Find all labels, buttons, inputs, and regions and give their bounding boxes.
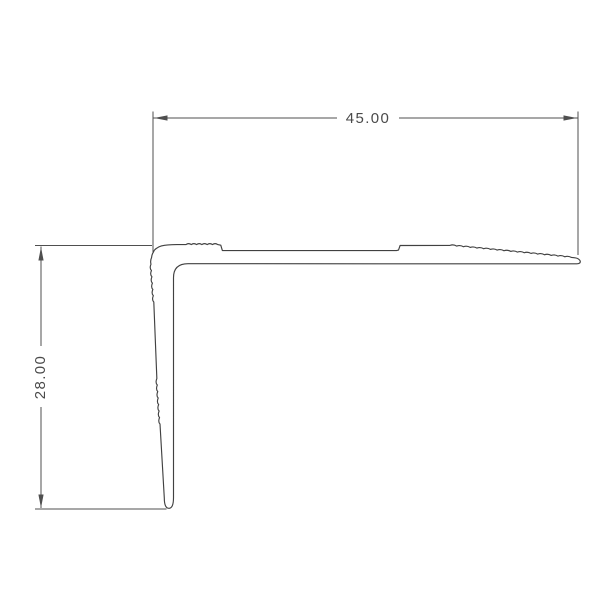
height-arrow-bottom: [38, 495, 43, 509]
width-arrow-right: [564, 115, 578, 120]
technical-drawing: 45.00 28.00: [0, 0, 600, 600]
width-dimension: [153, 112, 578, 256]
profile-outline: [150, 244, 580, 509]
height-dimension: [35, 246, 167, 510]
width-arrow-left: [154, 115, 168, 120]
height-dimension-label: 28.00: [32, 355, 49, 400]
drawing-canvas: 45.00 28.00: [0, 0, 600, 600]
width-dimension-label: 45.00: [346, 110, 391, 127]
height-arrow-top: [38, 247, 43, 261]
